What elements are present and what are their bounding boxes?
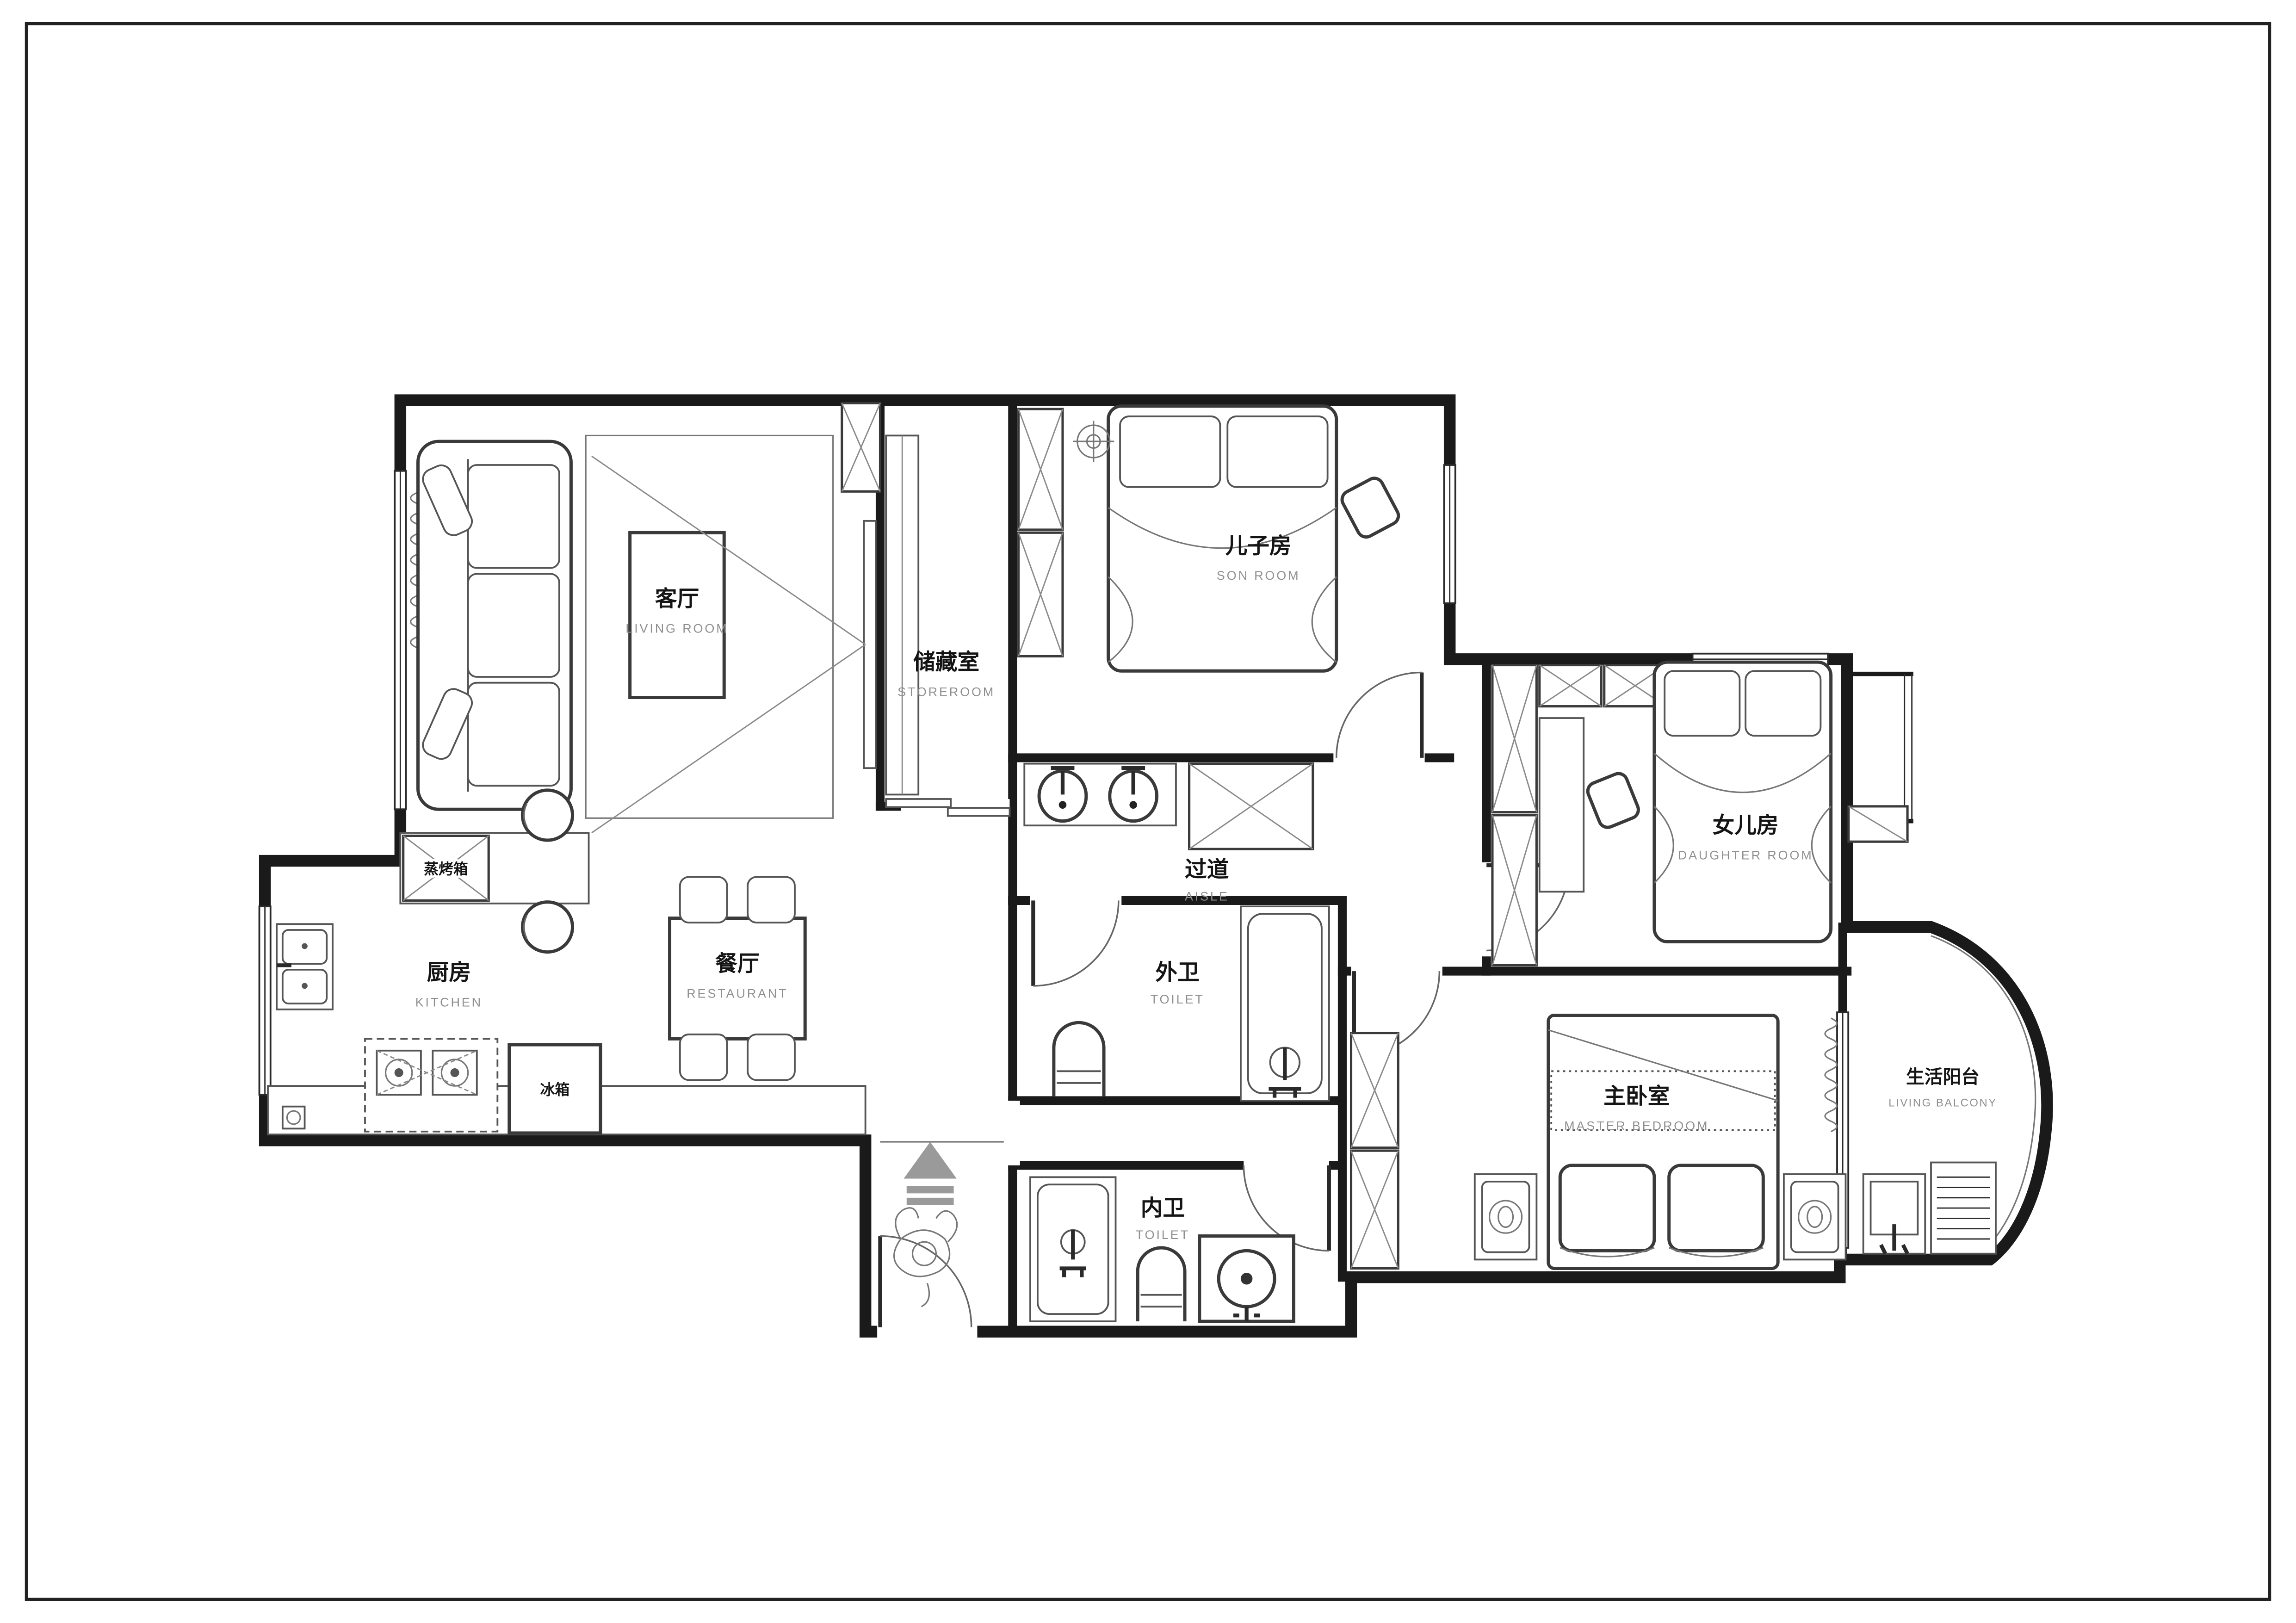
balcony-fixtures <box>1863 1163 1996 1254</box>
label-master-zh: 主卧室 <box>1603 1084 1670 1109</box>
label-aisle-en: AISLE <box>1185 889 1229 903</box>
son-room-door <box>1337 672 1422 757</box>
label-toilet-inner-zh: 内卫 <box>1141 1196 1185 1220</box>
floor-plan-drawing: 客厅 LIVING ROOM 储藏室 STOREROOM 儿子房 SON ROO… <box>0 0 2296 1623</box>
label-storeroom-zh: 储藏室 <box>913 650 979 675</box>
label-toilet-outer-zh: 外卫 <box>1155 960 1199 985</box>
washing-machine <box>1931 1163 1996 1254</box>
label-restaurant-zh: 餐厅 <box>715 952 759 976</box>
dining-chair <box>748 877 795 923</box>
storeroom-top-cabinet <box>842 403 880 491</box>
nightstand <box>1475 1174 1537 1259</box>
label-kitchen-zh: 厨房 <box>427 960 471 985</box>
daughter-bay-window <box>1847 674 1913 821</box>
dining-chair <box>680 877 727 923</box>
laundry-sink <box>1863 1174 1925 1254</box>
son-bed <box>1108 406 1337 671</box>
label-balcony-zh: 生活阳台 <box>1906 1067 1980 1087</box>
floor-drain <box>283 1107 305 1129</box>
label-son-zh: 儿子房 <box>1225 534 1292 558</box>
master-wardrobe <box>1351 1033 1399 1269</box>
aisle-cabinet <box>1189 764 1313 849</box>
bar-stool <box>522 902 572 952</box>
toilet-inner-vanity <box>1200 1236 1294 1321</box>
daughter-bed <box>1654 662 1831 942</box>
label-balcony-en: LIVING BALCONY <box>1888 1097 1997 1109</box>
toilet-outer-door <box>1033 900 1119 985</box>
entry-area <box>880 1142 1003 1307</box>
label-storeroom-en: STOREROOM <box>897 685 995 699</box>
label-toilet-outer-en: TOILET <box>1151 992 1205 1006</box>
label-kitchen-en: KITCHEN <box>415 995 483 1009</box>
dining-chair <box>748 1035 795 1080</box>
entry-door <box>880 1236 971 1327</box>
nightstand <box>1784 1174 1846 1259</box>
coffee-table <box>630 533 724 697</box>
double-washbasin-vanity <box>1024 764 1176 826</box>
master-curtain <box>1825 1018 1837 1132</box>
master-bed <box>1548 1015 1778 1268</box>
daughter-desk <box>1540 718 1584 892</box>
label-living-en: LIVING ROOM <box>625 622 728 636</box>
floor-plan-page: 客厅 LIVING ROOM 储藏室 STOREROOM 儿子房 SON ROO… <box>0 0 2296 1623</box>
label-fridge: 冰箱 <box>540 1081 570 1098</box>
son-room-window <box>1444 465 1455 603</box>
bathtub <box>1241 906 1329 1101</box>
son-chair <box>1339 475 1401 540</box>
label-restaurant-en: RESTAURANT <box>687 986 788 1000</box>
daughter-chair <box>1585 771 1641 830</box>
toilet-outer-wc <box>1054 1022 1104 1096</box>
aisle-fixtures <box>1024 764 1313 849</box>
son-room-furniture <box>1019 406 1402 671</box>
dining-furniture <box>670 877 805 1080</box>
sofa <box>418 441 571 809</box>
label-son-en: SON ROOM <box>1217 569 1300 582</box>
bay-side-cabinet <box>1849 806 1907 842</box>
label-master-en: MASTER BEDROOM <box>1564 1119 1709 1133</box>
dining-table <box>670 918 805 1039</box>
label-daughter-en: DAUGHTER ROOM <box>1678 848 1813 862</box>
bar-stool <box>522 790 572 840</box>
kitchen-sink <box>277 924 333 1009</box>
shower-tray <box>1030 1177 1116 1321</box>
label-aisle-zh: 过道 <box>1185 858 1229 882</box>
son-wardrobe <box>1019 409 1063 656</box>
label-toilet-inner-en: TOILET <box>1136 1228 1190 1242</box>
master-bedroom-furniture <box>1351 1015 1846 1268</box>
toilet-inner-wc <box>1138 1248 1185 1321</box>
kitchen-window <box>260 906 271 1095</box>
dining-chair <box>680 1035 727 1080</box>
person-figure <box>894 1208 957 1307</box>
label-steam-oven: 蒸烤箱 <box>424 861 468 877</box>
label-daughter-zh: 女儿房 <box>1713 813 1779 838</box>
entry-direction-arrow <box>904 1142 957 1205</box>
label-living-zh: 客厅 <box>655 587 699 611</box>
